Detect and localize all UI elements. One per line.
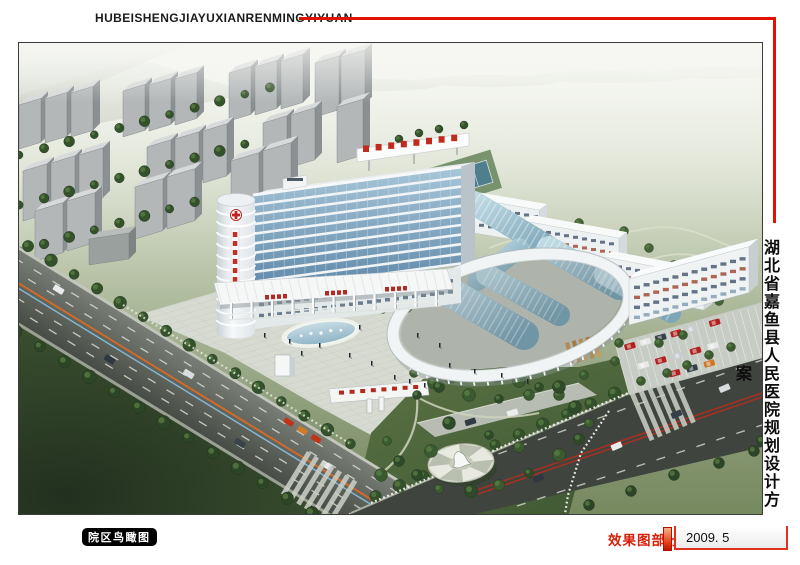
date-box: 2009. 5 (674, 526, 788, 550)
red-cross-icon (231, 210, 242, 221)
date-text: 2009. 5 (686, 530, 729, 545)
aerial-rendering-svg (19, 43, 762, 514)
caption-badge: 院区鸟瞰图 (82, 528, 157, 546)
red-rule-horizontal (299, 17, 776, 20)
side-title-vertical: 湖北省嘉鱼县人民医院规划设计方案 (756, 231, 784, 517)
red-rule-vertical (773, 17, 776, 223)
rendering-frame (18, 42, 763, 515)
plaza-sign-structure (275, 355, 295, 376)
red-divider-bar (663, 527, 672, 551)
